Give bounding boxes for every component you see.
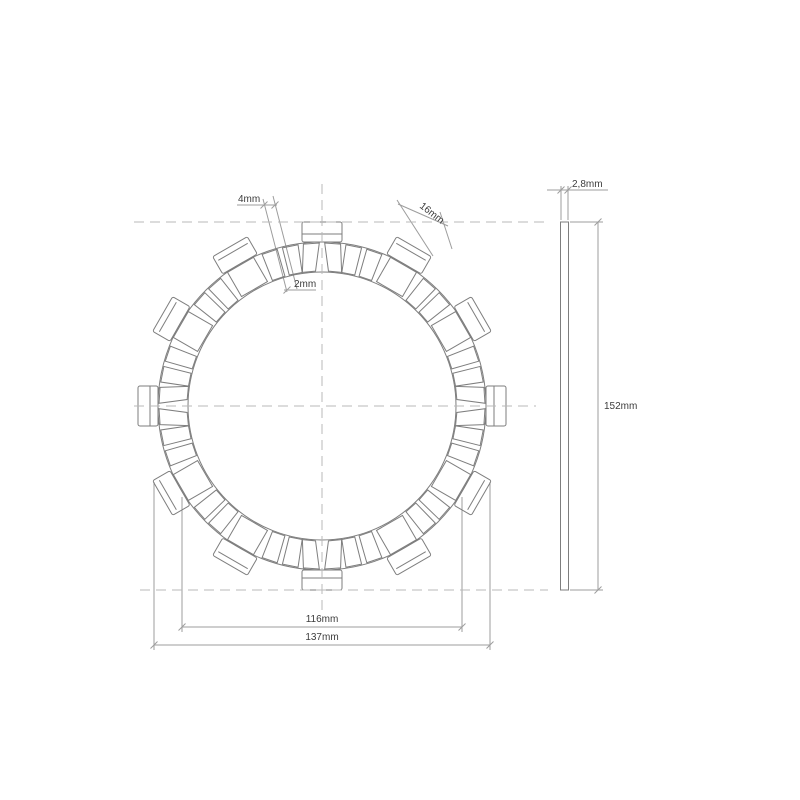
- side-view: [561, 222, 569, 590]
- dimension-lines: [151, 186, 609, 650]
- drive-tabs: [138, 222, 506, 590]
- dim-label-overall-diameter: 152mm: [604, 401, 637, 412]
- large-drive-tab: [213, 513, 272, 575]
- large-drive-tab: [429, 297, 491, 356]
- large-drive-tab: [213, 237, 272, 299]
- drawing-geometry: [134, 184, 608, 650]
- large-drive-tab: [372, 237, 431, 299]
- dim-label-pad-span: 116mm: [306, 614, 339, 625]
- large-drive-tab: [372, 513, 431, 575]
- large-drive-tab: [153, 456, 215, 515]
- large-drive-tab: [429, 456, 491, 515]
- dim-label-slot-gap: 2mm: [294, 279, 316, 290]
- dim-label-slot-width: 4mm: [238, 194, 260, 205]
- page: 4mm 2mm 16mm 2,8mm 152mm 116mm 137mm: [0, 0, 800, 800]
- large-drive-tab: [153, 297, 215, 356]
- technical-drawing: 4mm 2mm 16mm 2,8mm 152mm 116mm 137mm: [0, 0, 800, 800]
- dim-label-tab-width: 16mm: [417, 201, 446, 227]
- dimension-labels: 4mm 2mm 16mm 2,8mm 152mm 116mm 137mm: [238, 179, 637, 643]
- dim-label-thickness: 2,8mm: [572, 179, 603, 190]
- dim-label-tab-span: 137mm: [305, 632, 338, 643]
